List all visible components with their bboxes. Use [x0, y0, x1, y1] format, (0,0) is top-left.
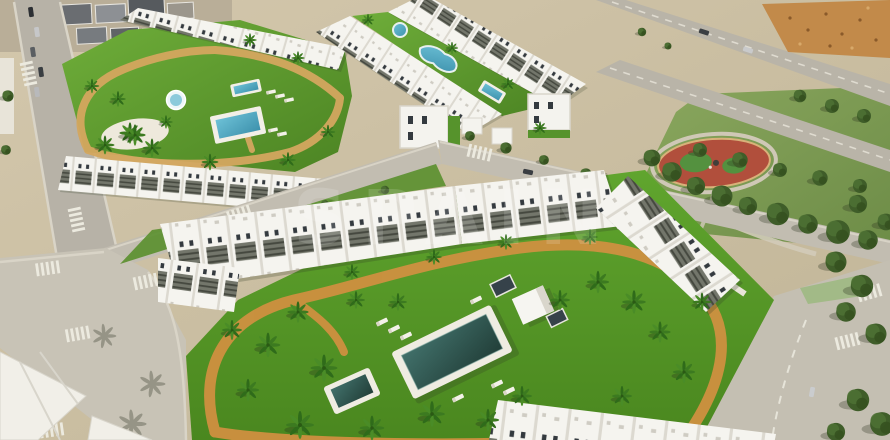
scene: SPAIN	[0, 0, 890, 440]
watermark-text: SPAIN	[293, 173, 617, 262]
aerial-render-photo: SPAIN	[0, 0, 890, 440]
fountain-pool	[167, 91, 186, 110]
round-pool	[393, 23, 407, 37]
small-house	[492, 128, 512, 144]
